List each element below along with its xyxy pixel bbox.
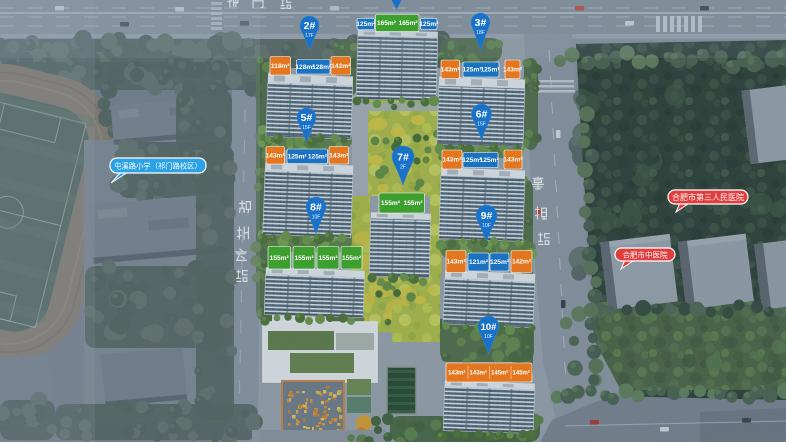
svg-text:合肥市中医院: 合肥市中医院: [623, 250, 668, 260]
svg-text:145m²: 145m²: [491, 370, 508, 377]
svg-text:143m²: 143m²: [446, 259, 466, 266]
svg-text:143m²: 143m²: [470, 370, 487, 377]
svg-text:125m²: 125m²: [308, 153, 328, 160]
svg-text:145m²: 145m²: [513, 370, 530, 377]
svg-text:165m²: 165m²: [399, 20, 419, 27]
svg-text:143m²: 143m²: [503, 67, 523, 74]
svg-text:142m²: 142m²: [331, 63, 351, 70]
svg-text:165m²: 165m²: [377, 20, 397, 27]
svg-text:118m²: 118m²: [271, 63, 291, 70]
svg-text:155m²: 155m²: [404, 200, 424, 207]
svg-text:125m²: 125m²: [480, 67, 500, 74]
svg-text:142m²: 142m²: [512, 259, 532, 266]
svg-text:121m²: 121m²: [469, 259, 489, 266]
svg-text:125m²: 125m²: [288, 153, 308, 160]
svg-text:143m²: 143m²: [329, 152, 349, 159]
svg-text:17F: 17F: [305, 33, 314, 39]
svg-text:125m²: 125m²: [462, 67, 482, 74]
svg-text:屯溪路小学（祁门路校区）: 屯溪路小学（祁门路校区）: [114, 161, 202, 170]
svg-text:143m²: 143m²: [503, 157, 523, 164]
svg-text:15F: 15F: [477, 122, 486, 128]
svg-text:128m²: 128m²: [312, 64, 332, 71]
svg-text:8#: 8#: [310, 202, 322, 214]
svg-text:155m²: 155m²: [294, 255, 314, 262]
svg-text:125m²: 125m²: [356, 21, 376, 28]
svg-text:7#: 7#: [397, 152, 409, 164]
svg-text:2#: 2#: [304, 20, 316, 32]
svg-text:143m²: 143m²: [266, 152, 286, 159]
svg-text:125m²: 125m²: [480, 157, 500, 164]
svg-text:143m²: 143m²: [442, 157, 462, 164]
svg-text:3#: 3#: [475, 17, 487, 29]
svg-text:155m²: 155m²: [270, 255, 290, 262]
svg-text:15F: 15F: [302, 125, 311, 131]
svg-text:143m²: 143m²: [441, 67, 461, 74]
svg-text:18F: 18F: [476, 30, 485, 36]
svg-text:10#: 10#: [481, 322, 498, 333]
svg-text:155m²: 155m²: [381, 200, 401, 207]
svg-text:6#: 6#: [476, 109, 488, 121]
svg-text:10F: 10F: [312, 215, 321, 221]
svg-text:155m²: 155m²: [318, 255, 338, 262]
svg-text:2F: 2F: [400, 165, 406, 171]
svg-text:125m²: 125m²: [490, 259, 510, 266]
svg-text:10F: 10F: [484, 334, 493, 340]
svg-text:合肥市第三人民医院: 合肥市第三人民医院: [672, 192, 744, 202]
svg-text:9#: 9#: [481, 210, 493, 222]
svg-text:155m²: 155m²: [342, 255, 362, 262]
svg-text:5#: 5#: [301, 112, 313, 124]
svg-text:10F: 10F: [482, 223, 491, 229]
svg-text:143m²: 143m²: [448, 370, 465, 377]
svg-text:125m²: 125m²: [419, 21, 439, 28]
